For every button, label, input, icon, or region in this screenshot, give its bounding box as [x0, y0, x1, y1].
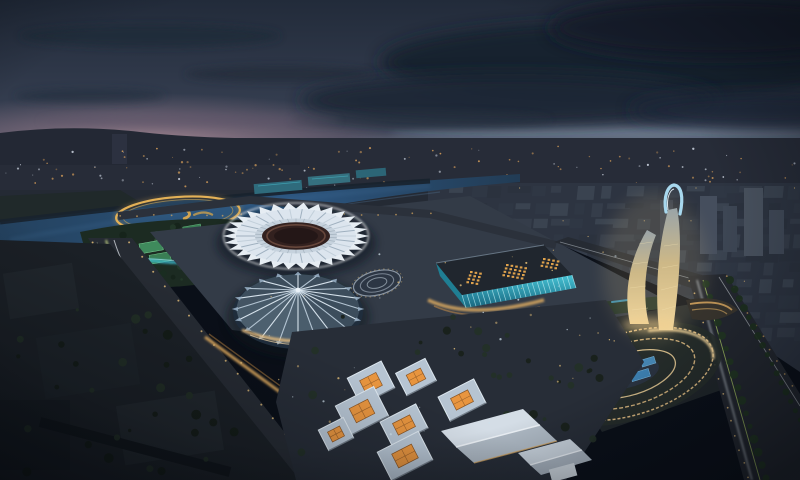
- rendering-image: [0, 0, 800, 480]
- corner-shade: [0, 0, 800, 480]
- scene-canvas: [0, 0, 800, 480]
